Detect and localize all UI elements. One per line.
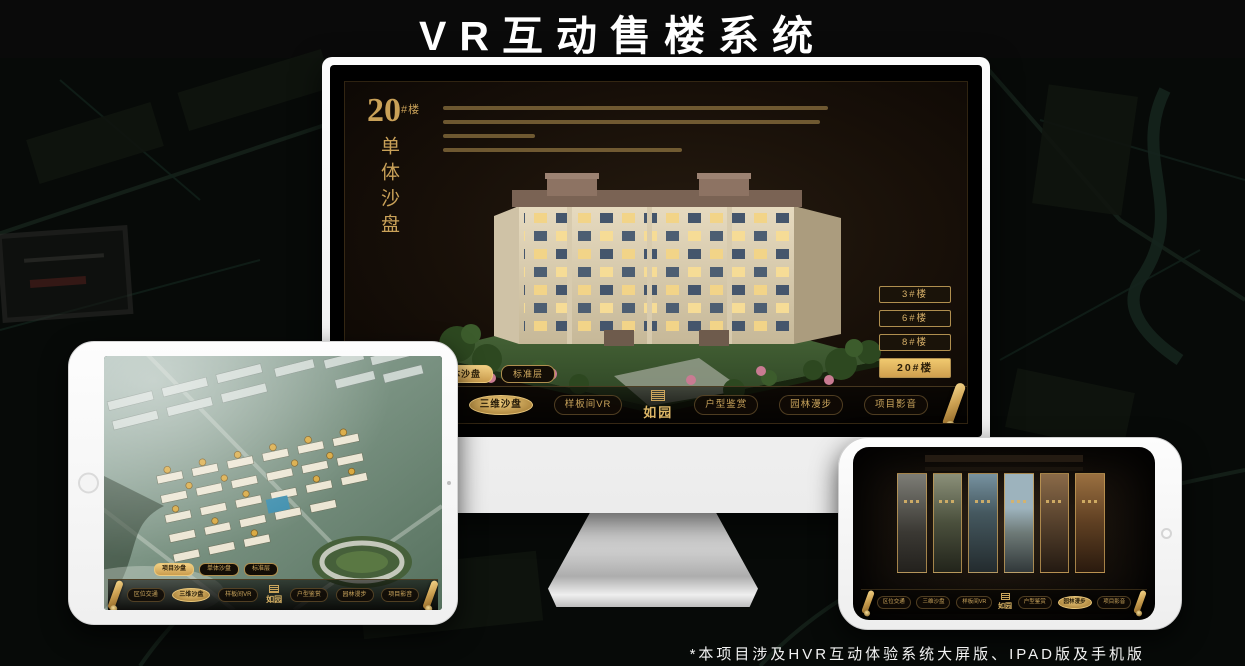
nav-garden-walk[interactable]: 园林漫步 [779, 395, 843, 415]
nav-3d-sandbox[interactable]: 三维沙盘 [172, 588, 210, 602]
phone-camera-dot [1161, 528, 1172, 539]
project-logo-text: 如园 [643, 402, 673, 421]
footnote: *本项目涉及HVR互动体验系统大屏版、IPAD版及手机版 [690, 643, 1145, 664]
floor-button-20[interactable]: 20#楼 [879, 358, 951, 378]
gallery-panel[interactable] [968, 473, 998, 573]
ipad-subtabs: 项目沙盘 单体沙盘 标准层 [154, 563, 278, 576]
tab-standard-floor[interactable]: 标准层 [501, 365, 555, 383]
floor-button-3[interactable]: 3#楼 [879, 286, 951, 303]
nav-project-video[interactable]: 项目影音 [864, 395, 928, 415]
ipad-device: 项目沙盘 单体沙盘 标准层 区位交通 三维沙盘 样板间VR 如园 户型鉴赏 园林… [68, 341, 458, 625]
building-number: 20 [367, 92, 401, 129]
nav-unit-gallery[interactable]: 户型鉴赏 [694, 395, 758, 415]
building-heading-vertical: 单体沙盘 [375, 136, 402, 240]
scroll-icon[interactable] [941, 382, 966, 424]
ipad-screen: 项目沙盘 单体沙盘 标准层 区位交通 三维沙盘 样板间VR 如园 户型鉴赏 园林… [104, 356, 442, 610]
project-logo: 如园 [998, 593, 1012, 611]
gallery-panels [897, 473, 1105, 573]
ipad-bottom-nav: 区位交通 三维沙盘 样板间VR 如园 户型鉴赏 园林漫步 项目影音 [108, 579, 438, 610]
seal-emblem-icon [1001, 593, 1010, 600]
nav-project-video[interactable]: 项目影音 [381, 588, 419, 602]
nav-showroom-vr[interactable]: 样板间VR [956, 596, 992, 609]
ipad-home-button[interactable] [78, 473, 99, 494]
scroll-icon[interactable] [422, 580, 439, 610]
gallery-panel[interactable] [933, 473, 963, 573]
tab-single-sandbox[interactable]: 单体沙盘 [199, 563, 239, 576]
nav-showroom-vr[interactable]: 样板间VR [554, 395, 623, 415]
floor-button-group: 3#楼 6#楼 8#楼 20#楼 [879, 286, 951, 378]
nav-unit-gallery[interactable]: 户型鉴赏 [290, 588, 328, 602]
nav-3d-sandbox[interactable]: 三维沙盘 [916, 596, 950, 609]
scroll-icon[interactable] [107, 580, 124, 610]
tab-standard-floor[interactable]: 标准层 [244, 563, 278, 576]
nav-location-traffic[interactable]: 区位交通 [877, 596, 911, 609]
gallery-panel[interactable] [1004, 473, 1034, 573]
gallery-panel[interactable] [897, 473, 927, 573]
phone-screen: 区位交通 三维沙盘 样板间VR 如园 户型鉴赏 园林漫步 项目影音 [853, 447, 1155, 620]
nav-project-video[interactable]: 项目影音 [1097, 596, 1131, 609]
gallery-panel[interactable] [1040, 473, 1070, 573]
phone-bottom-nav: 区位交通 三维沙盘 样板间VR 如园 户型鉴赏 园林漫步 项目影音 [861, 589, 1147, 614]
scroll-icon[interactable] [861, 590, 875, 615]
seal-emblem-icon [651, 390, 665, 401]
nav-unit-gallery[interactable]: 户型鉴赏 [1018, 596, 1052, 609]
nav-showroom-vr[interactable]: 样板间VR [218, 588, 258, 602]
nav-garden-walk[interactable]: 园林漫步 [1058, 596, 1092, 609]
project-logo: 如园 [643, 390, 673, 421]
floor-button-6[interactable]: 6#楼 [879, 310, 951, 327]
ipad-camera-dot [447, 481, 451, 485]
floor-button-8[interactable]: 8#楼 [879, 334, 951, 351]
gallery-panel[interactable] [1075, 473, 1105, 573]
scroll-icon[interactable] [1133, 590, 1147, 615]
project-logo: 如园 [266, 585, 282, 605]
project-logo-text: 如园 [266, 594, 282, 605]
seal-emblem-icon [269, 585, 279, 593]
phone-device: 区位交通 三维沙盘 样板间VR 如园 户型鉴赏 园林漫步 项目影音 [838, 437, 1182, 630]
nav-3d-sandbox[interactable]: 三维沙盘 [469, 395, 533, 415]
building-number-suffix: #楼 [401, 104, 420, 116]
nav-location-traffic[interactable]: 区位交通 [127, 588, 165, 602]
page-title: VR互动售楼系统 [0, 2, 1245, 62]
nav-garden-walk[interactable]: 园林漫步 [336, 588, 374, 602]
project-logo-text: 如园 [998, 601, 1012, 611]
tab-project-sandbox[interactable]: 项目沙盘 [154, 563, 194, 576]
